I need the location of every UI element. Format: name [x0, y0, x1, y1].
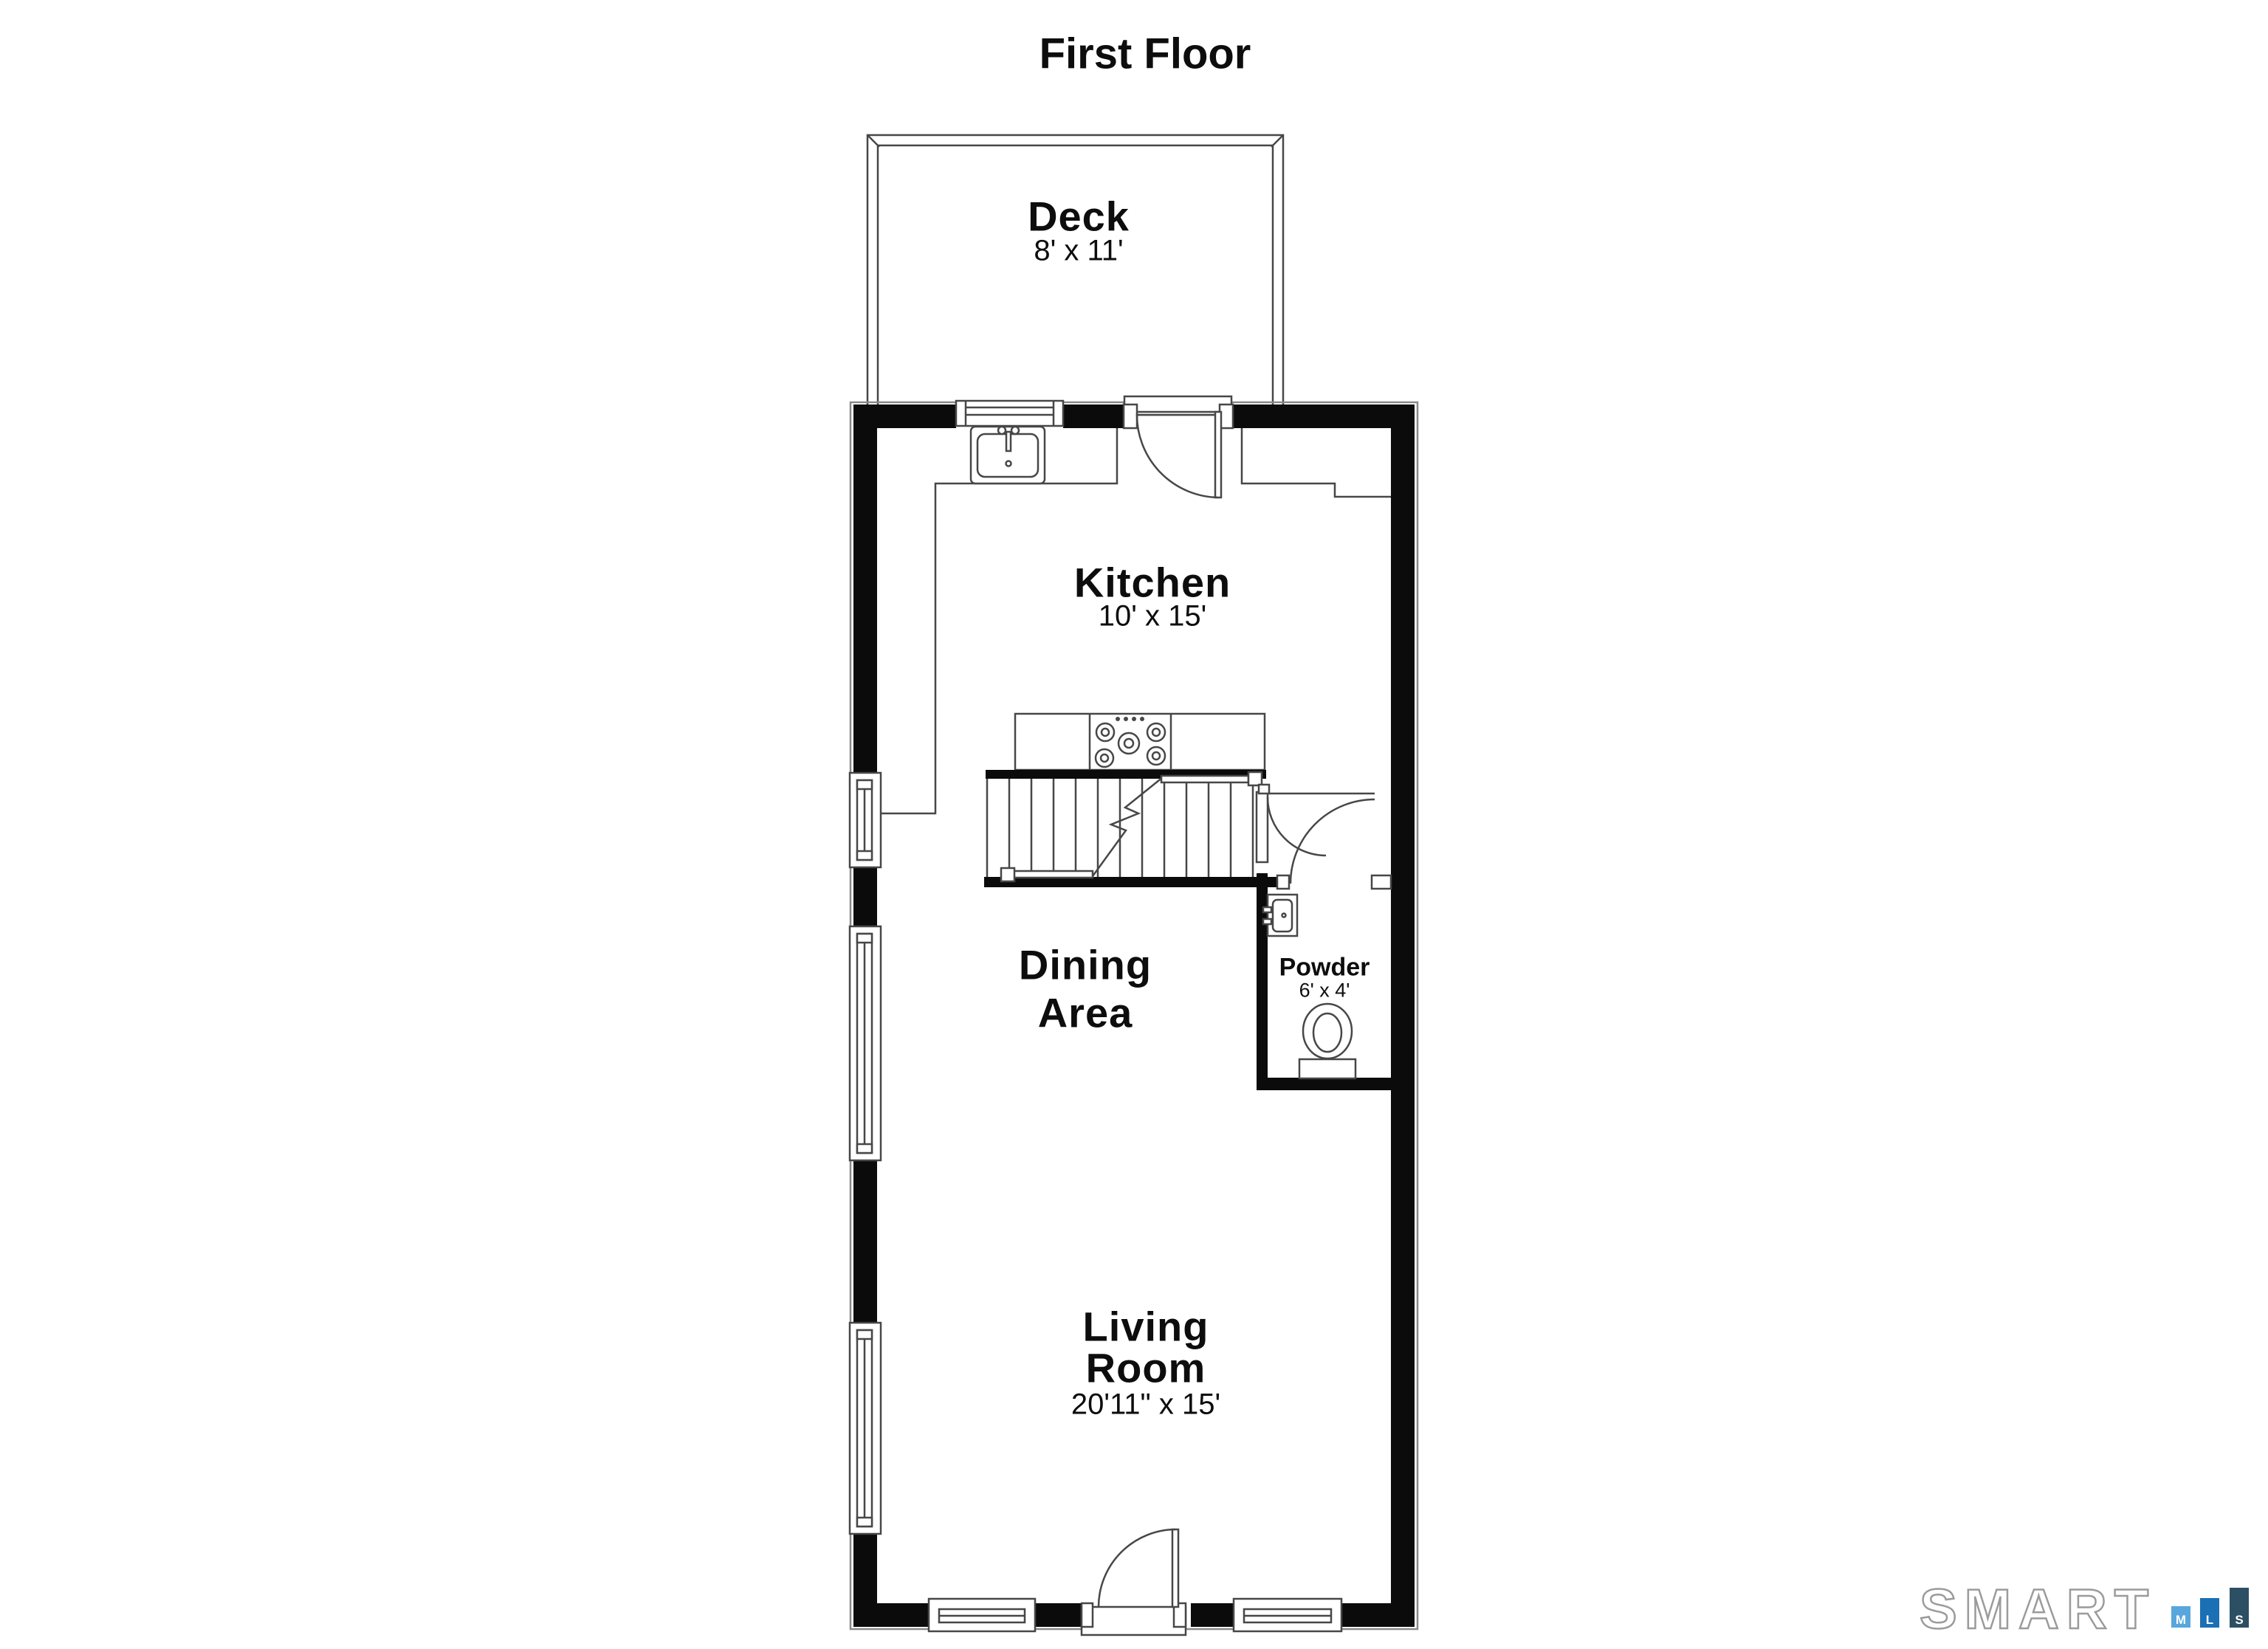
deck-dims: 8' x 11'	[1034, 235, 1123, 268]
floor-title: First Floor	[1039, 30, 1251, 79]
logo-letter-s: S	[2235, 1613, 2243, 1627]
left-window-3-icon	[850, 1323, 881, 1534]
dining-label-line2: Area	[1038, 989, 1133, 1037]
living-label-line2: Room	[1086, 1344, 1206, 1392]
bottom-window-2-icon	[1234, 1599, 1341, 1631]
kitchen-window-icon	[956, 401, 1063, 426]
deck-label: Deck	[1028, 193, 1130, 241]
left-window-2-icon	[850, 926, 881, 1160]
deck-door-icon	[1124, 396, 1233, 498]
powder-dims: 6' x 4'	[1299, 980, 1350, 1002]
stairs-handrail	[1001, 772, 1269, 881]
smartmls-logo-wordmark: SMART	[1920, 1578, 2156, 1639]
bottom-window-1-icon	[929, 1599, 1035, 1631]
left-window-1-icon	[850, 773, 881, 867]
stairs	[987, 772, 1269, 881]
powder-label: Powder	[1279, 954, 1370, 982]
stairs-up-line	[1093, 777, 1163, 876]
kitchen-dims: 10' x 15'	[1099, 600, 1206, 633]
powder-door-icon	[1257, 792, 1391, 889]
logo-letter-l: L	[2206, 1613, 2213, 1627]
front-door-icon	[1082, 1529, 1186, 1635]
toilet-icon	[1299, 1004, 1355, 1078]
living-dims: 20'11" x 15'	[1071, 1388, 1220, 1422]
logo-letter-m: M	[2176, 1613, 2186, 1627]
kitchen-sink-icon	[971, 427, 1045, 483]
stove-icon	[1015, 714, 1265, 770]
deck-outline	[867, 135, 1283, 415]
powder-sink-icon	[1263, 895, 1297, 936]
smartmls-logo: SMART M L S	[1914, 1577, 2264, 1639]
dining-label-line1: Dining	[1019, 941, 1152, 989]
